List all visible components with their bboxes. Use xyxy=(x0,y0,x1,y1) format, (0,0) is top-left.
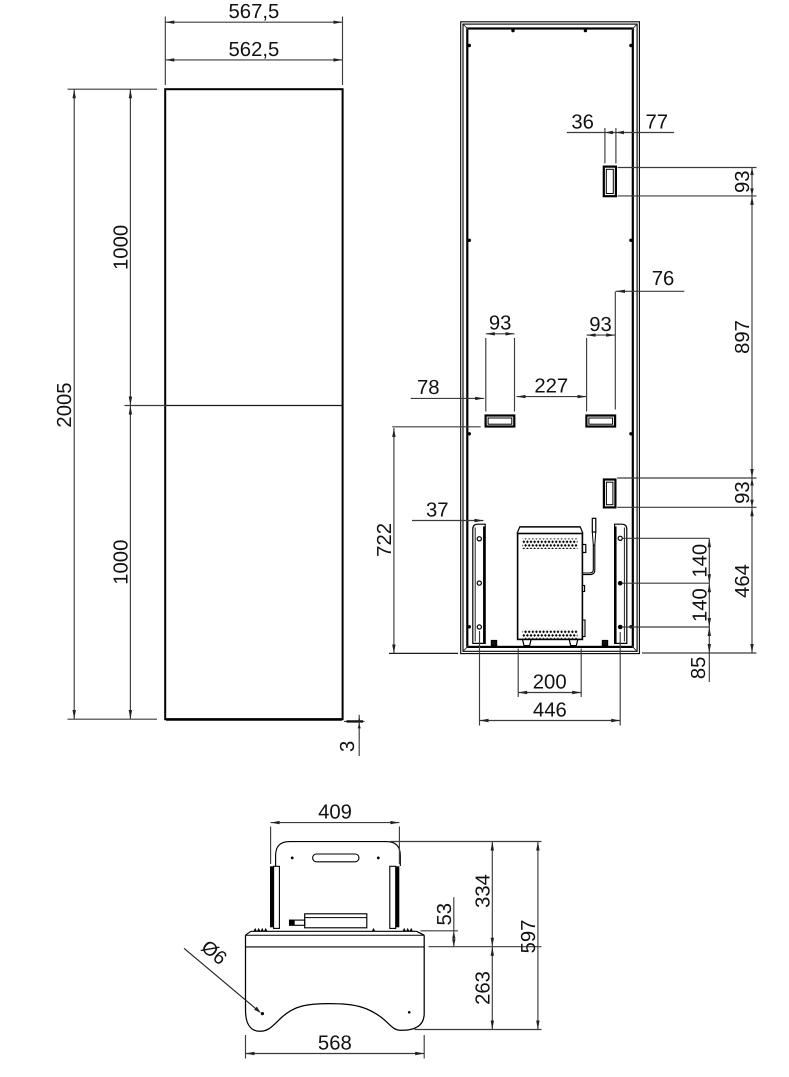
svg-text:227: 227 xyxy=(534,375,568,397)
svg-text:93: 93 xyxy=(732,481,754,504)
svg-text:78: 78 xyxy=(417,377,440,399)
svg-text:77: 77 xyxy=(646,111,669,133)
svg-text:409: 409 xyxy=(318,802,352,824)
svg-text:562,5: 562,5 xyxy=(229,39,280,61)
svg-text:93: 93 xyxy=(489,312,512,334)
svg-text:93: 93 xyxy=(732,170,754,193)
svg-text:1000: 1000 xyxy=(110,540,132,585)
svg-text:464: 464 xyxy=(732,564,754,598)
svg-text:76: 76 xyxy=(652,268,675,290)
svg-text:37: 37 xyxy=(426,499,449,521)
svg-text:140: 140 xyxy=(689,544,711,578)
svg-text:597: 597 xyxy=(518,920,540,954)
svg-text:85: 85 xyxy=(688,657,710,680)
svg-text:446: 446 xyxy=(533,700,567,722)
svg-text:1000: 1000 xyxy=(110,225,132,270)
svg-text:140: 140 xyxy=(689,588,711,622)
svg-text:568: 568 xyxy=(318,1033,352,1055)
svg-text:263: 263 xyxy=(472,971,494,1005)
svg-text:2005: 2005 xyxy=(54,382,76,427)
svg-text:3: 3 xyxy=(337,741,359,752)
svg-text:897: 897 xyxy=(732,320,754,354)
svg-text:36: 36 xyxy=(571,112,594,134)
svg-text:93: 93 xyxy=(589,314,612,336)
svg-text:53: 53 xyxy=(434,903,456,926)
svg-text:722: 722 xyxy=(374,523,396,557)
svg-text:334: 334 xyxy=(472,874,494,908)
svg-text:200: 200 xyxy=(533,672,567,694)
svg-text:567,5: 567,5 xyxy=(229,1,280,23)
